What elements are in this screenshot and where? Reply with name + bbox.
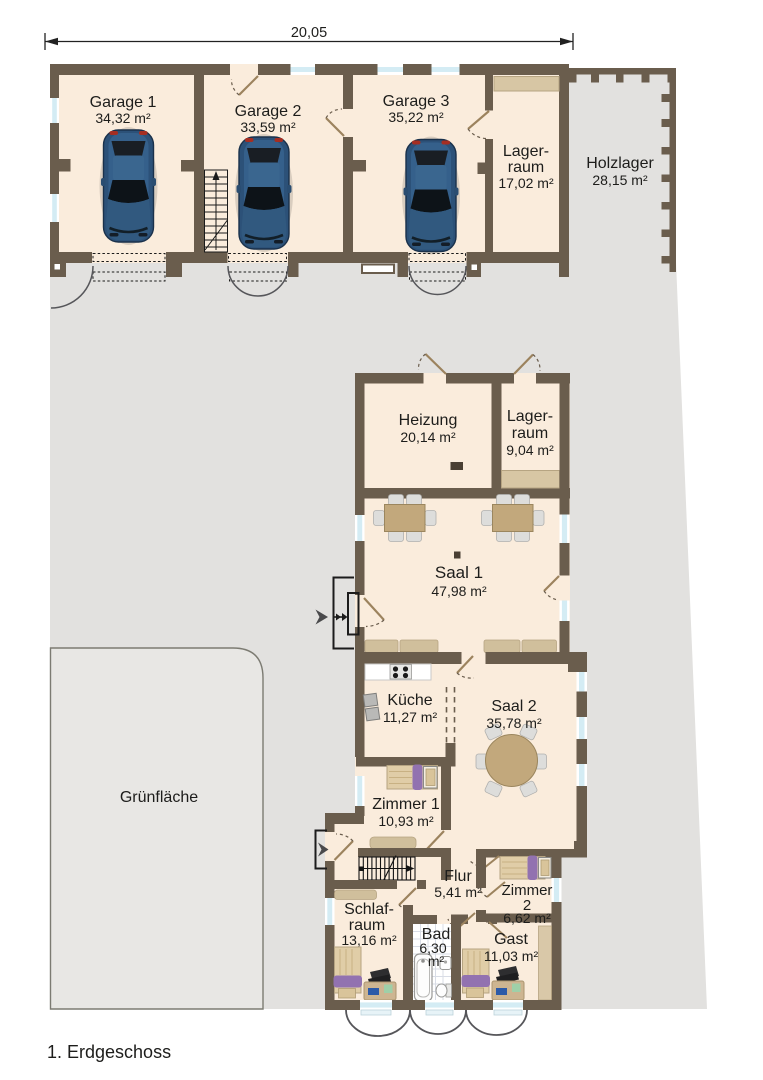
svg-text:35,78 m²: 35,78 m² bbox=[486, 715, 542, 731]
svg-text:20,05: 20,05 bbox=[291, 25, 327, 41]
svg-text:Saal 2: Saal 2 bbox=[491, 698, 536, 715]
svg-text:11,27 m²: 11,27 m² bbox=[383, 709, 438, 725]
svg-text:Holzlager: Holzlager bbox=[586, 155, 654, 172]
svg-text:10,93 m²: 10,93 m² bbox=[378, 813, 434, 829]
svg-text:20,14 m²: 20,14 m² bbox=[400, 429, 456, 445]
svg-text:Garage 2: Garage 2 bbox=[235, 103, 302, 120]
svg-text:Flur: Flur bbox=[444, 868, 472, 885]
svg-text:Lager-: Lager- bbox=[507, 408, 553, 425]
svg-text:Lager-: Lager- bbox=[503, 143, 549, 160]
svg-text:Grünfläche: Grünfläche bbox=[120, 789, 198, 806]
svg-text:Garage 3: Garage 3 bbox=[383, 93, 450, 110]
svg-text:Heizung: Heizung bbox=[399, 412, 458, 429]
svg-text:5,41 m²: 5,41 m² bbox=[434, 884, 482, 900]
svg-text:Saal 1: Saal 1 bbox=[435, 563, 483, 582]
svg-text:raum: raum bbox=[512, 425, 548, 442]
svg-text:Garage 1: Garage 1 bbox=[90, 94, 157, 111]
svg-text:33,59 m²: 33,59 m² bbox=[240, 119, 296, 135]
svg-text:34,32 m²: 34,32 m² bbox=[95, 110, 151, 126]
svg-text:35,22 m²: 35,22 m² bbox=[388, 109, 444, 125]
svg-text:Zimmer 1: Zimmer 1 bbox=[372, 796, 440, 813]
svg-text:11,03 m²: 11,03 m² bbox=[484, 948, 539, 964]
svg-text:47,98 m²: 47,98 m² bbox=[431, 583, 487, 599]
svg-text:Schlaf-: Schlaf- bbox=[344, 901, 394, 918]
svg-text:9,04 m²: 9,04 m² bbox=[506, 442, 554, 458]
svg-text:17,02 m²: 17,02 m² bbox=[498, 175, 554, 191]
svg-text:Küche: Küche bbox=[387, 692, 432, 709]
svg-text:Gast: Gast bbox=[494, 931, 528, 948]
svg-text:13,16 m²: 13,16 m² bbox=[341, 932, 397, 948]
svg-text:m²: m² bbox=[428, 953, 445, 969]
svg-text:raum: raum bbox=[508, 159, 544, 176]
svg-text:6,62 m²: 6,62 m² bbox=[503, 910, 551, 926]
svg-text:1. Erdgeschoss: 1. Erdgeschoss bbox=[47, 1042, 171, 1062]
svg-text:28,15 m²: 28,15 m² bbox=[592, 172, 648, 188]
